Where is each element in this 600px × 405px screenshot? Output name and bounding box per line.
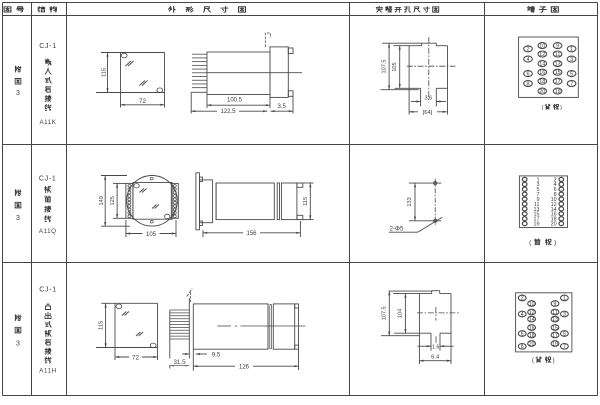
svg-text:3.5: 3.5 bbox=[278, 104, 287, 110]
svg-text:3: 3 bbox=[16, 215, 20, 222]
svg-text:10: 10 bbox=[529, 301, 535, 307]
svg-text:122.5: 122.5 bbox=[220, 109, 236, 115]
svg-text:4: 4 bbox=[521, 312, 524, 318]
svg-text:13: 13 bbox=[552, 317, 558, 323]
svg-text:11: 11 bbox=[552, 310, 557, 316]
svg-text:9: 9 bbox=[556, 43, 559, 49]
svg-text:105: 105 bbox=[392, 62, 398, 71]
svg-text:): ) bbox=[554, 239, 556, 246]
svg-text:CJ-1: CJ-1 bbox=[39, 287, 57, 294]
svg-text:CJ-1: CJ-1 bbox=[39, 175, 57, 182]
svg-text:19: 19 bbox=[534, 221, 540, 227]
svg-text:104: 104 bbox=[398, 309, 404, 318]
svg-text:18: 18 bbox=[539, 79, 545, 85]
svg-text:31.5: 31.5 bbox=[173, 359, 186, 366]
svg-text:2: 2 bbox=[527, 47, 530, 53]
svg-text:100.5: 100.5 bbox=[227, 97, 243, 103]
svg-text:126: 126 bbox=[239, 364, 250, 370]
svg-text:72: 72 bbox=[139, 98, 146, 105]
svg-text:6: 6 bbox=[527, 71, 530, 77]
svg-text:[64]: [64] bbox=[423, 110, 433, 116]
svg-text:115: 115 bbox=[303, 197, 309, 206]
svg-text:3: 3 bbox=[563, 312, 566, 318]
svg-text:20: 20 bbox=[551, 221, 557, 227]
svg-text:11: 11 bbox=[555, 52, 561, 58]
svg-text:105: 105 bbox=[146, 232, 157, 238]
svg-text:14: 14 bbox=[529, 317, 535, 323]
svg-text:14: 14 bbox=[539, 61, 545, 67]
svg-text:133: 133 bbox=[407, 197, 413, 206]
svg-text:12: 12 bbox=[529, 310, 535, 316]
svg-text:8: 8 bbox=[527, 81, 530, 87]
svg-text:125: 125 bbox=[110, 196, 116, 205]
svg-text:6.4: 6.4 bbox=[431, 355, 440, 361]
svg-text:1: 1 bbox=[563, 296, 566, 302]
svg-text:15: 15 bbox=[555, 70, 561, 76]
svg-text:16: 16 bbox=[529, 325, 535, 331]
svg-text:7: 7 bbox=[563, 344, 566, 350]
svg-text:4: 4 bbox=[527, 57, 530, 63]
svg-text:2: 2 bbox=[521, 296, 524, 302]
svg-text:6: 6 bbox=[521, 331, 524, 337]
svg-text:18: 18 bbox=[529, 333, 535, 339]
svg-text:): ) bbox=[553, 357, 555, 364]
svg-text:12: 12 bbox=[539, 52, 545, 58]
svg-text:13: 13 bbox=[555, 61, 561, 67]
svg-text:7: 7 bbox=[570, 81, 573, 87]
svg-text:1: 1 bbox=[570, 47, 573, 53]
svg-text:A11Q: A11Q bbox=[39, 228, 57, 235]
svg-text:19: 19 bbox=[552, 341, 558, 347]
svg-text:107.5: 107.5 bbox=[381, 59, 387, 73]
svg-text:15: 15 bbox=[552, 325, 558, 331]
svg-text:19: 19 bbox=[555, 89, 561, 95]
svg-text:115: 115 bbox=[99, 321, 105, 330]
svg-text:20: 20 bbox=[539, 89, 545, 95]
svg-text:CJ-1: CJ-1 bbox=[39, 43, 57, 50]
svg-text:9: 9 bbox=[554, 301, 557, 307]
svg-text:3: 3 bbox=[570, 57, 573, 63]
svg-text:): ) bbox=[560, 105, 562, 111]
svg-text:3.6: 3.6 bbox=[425, 96, 433, 102]
svg-text:1.6: 1.6 bbox=[432, 344, 440, 350]
svg-text:17: 17 bbox=[552, 333, 558, 339]
svg-text:156: 156 bbox=[246, 231, 257, 237]
svg-text:2-Φ5: 2-Φ5 bbox=[390, 225, 404, 232]
svg-text:(: ( bbox=[542, 105, 544, 111]
svg-text:107.5: 107.5 bbox=[381, 306, 387, 320]
svg-text:17: 17 bbox=[555, 79, 561, 85]
svg-text:149: 149 bbox=[99, 196, 105, 205]
svg-text:5: 5 bbox=[563, 331, 566, 337]
svg-text:20: 20 bbox=[529, 341, 535, 347]
svg-text:16: 16 bbox=[539, 70, 545, 76]
svg-text:72: 72 bbox=[132, 354, 139, 361]
svg-text:115: 115 bbox=[101, 68, 107, 77]
svg-text:9.5: 9.5 bbox=[212, 352, 221, 358]
svg-text:A11K: A11K bbox=[39, 119, 56, 126]
svg-text:A11H: A11H bbox=[39, 368, 56, 375]
svg-text:3: 3 bbox=[16, 90, 20, 97]
svg-text:5: 5 bbox=[570, 71, 573, 77]
svg-text:8: 8 bbox=[521, 344, 524, 350]
svg-text:3: 3 bbox=[16, 340, 20, 347]
svg-text:10: 10 bbox=[539, 43, 545, 49]
